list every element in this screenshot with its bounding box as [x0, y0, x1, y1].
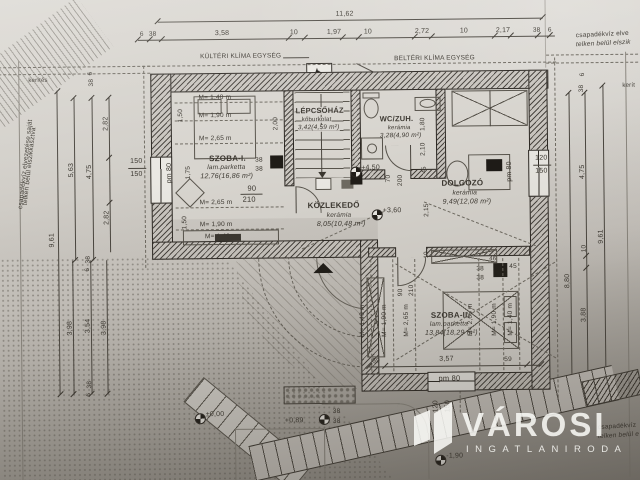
roof-overhang-right — [554, 58, 559, 398]
wall-right — [528, 70, 550, 390]
dim-top: 3,58 — [215, 30, 230, 37]
level-marker-icon — [195, 413, 206, 424]
dim-right: 4,75 — [579, 164, 586, 179]
height-label: M= 2,65 m — [200, 200, 233, 207]
paper-crease — [544, 0, 546, 68]
room-material-dolgozo: kerámia — [452, 190, 477, 197]
small-dim: 1,80 — [420, 117, 427, 131]
window-size-divider — [128, 168, 146, 169]
height-label: M= 1,40 m — [198, 95, 231, 102]
dim-line-right-2 — [584, 92, 588, 389]
watermark-subtitle: INGATLANIRODA — [466, 444, 627, 455]
level-value: ±0,00 — [206, 411, 225, 418]
window-size: 150 — [130, 158, 142, 165]
level-marker-icon — [319, 414, 330, 425]
cabinet-szoba2-top — [431, 249, 497, 264]
outdoor-ac-leader — [283, 57, 309, 58]
height-label: M= 1,40 m — [205, 234, 238, 241]
dim-top: 38 — [149, 32, 157, 39]
room-area-kozlekedo: 8,05(10,48 m²) — [317, 221, 366, 229]
room-name-dolgozo: DOLGOZÓ — [441, 179, 483, 187]
room-name-szoba1: SZOBA-I. — [209, 155, 246, 163]
room-material-szoba2: lam.parketta — [430, 321, 468, 328]
room-area-wc: 3,28(4,90 m²) — [380, 133, 422, 140]
door-size: 210 — [409, 285, 416, 297]
column-size: 38 — [476, 266, 484, 273]
small-dim: 2,10 — [420, 142, 427, 156]
dim-right: 10 — [582, 245, 589, 253]
dim-top: 6 — [548, 28, 552, 35]
column-size: 38 — [333, 409, 341, 416]
level-marker-icon — [350, 167, 361, 178]
dim-top-total: 11,62 — [336, 11, 354, 18]
roof-overhang-top — [142, 62, 556, 67]
parapet-label: pm 80 — [506, 161, 513, 182]
window-size: 120 — [535, 155, 547, 162]
toilet-tank — [362, 92, 379, 98]
window-size: 150 — [535, 168, 547, 175]
room-name-lepcsohaz: LÉPCSŐHÁZ — [296, 107, 344, 115]
room-area-lepcsohaz: 3,42(4,59 m²) — [298, 125, 340, 132]
dim-top: 10 — [460, 27, 468, 34]
dim-top: 10 — [290, 29, 298, 36]
column-size: 38 — [476, 275, 484, 282]
small-dim: 2,15 — [424, 203, 431, 217]
dim-top: 6 — [140, 32, 144, 39]
partition-szoba2-top-a — [368, 247, 396, 257]
ground-line-h — [322, 403, 400, 405]
watermark-brand: VÁROSI — [462, 406, 607, 444]
stair-landing-box — [315, 178, 331, 190]
column-size: 38 — [255, 158, 263, 165]
toilet — [364, 98, 379, 118]
entrance-marker-icon — [313, 263, 333, 273]
ground-floor-outline — [235, 428, 326, 480]
dim-left: 38 — [89, 79, 96, 87]
level-value: +3,60 — [383, 207, 402, 214]
room-material-wc: kerámia — [388, 125, 411, 131]
dim-left: 3,54 — [85, 319, 92, 334]
dim-right: 8,80 — [564, 274, 571, 289]
room-name-szoba2: SZOBA-II. — [431, 311, 470, 319]
parapet-label: pm 80 — [438, 375, 460, 383]
dim-bottom: 59 — [504, 357, 512, 364]
dim-left: 4,75 — [86, 165, 93, 180]
dim-left: 6 — [88, 72, 95, 76]
room-name-wc: WC/ZUH. — [380, 115, 414, 123]
small-dim: 1,50 — [178, 109, 185, 123]
logo-mark-icon — [414, 410, 430, 446]
column-size: 38 — [333, 419, 341, 426]
dim-left: 5,63 — [68, 163, 75, 178]
dim-left: 2,82 — [102, 116, 109, 131]
dim-left: 38 — [87, 381, 94, 389]
fence-label-right: kerít — [622, 83, 635, 89]
column-38 — [270, 155, 283, 168]
room-area-dolgozo: 9,49(12,08 m²) — [443, 198, 492, 206]
door-size: 200 — [398, 175, 405, 187]
dim-top: 38 — [533, 28, 541, 35]
dim-line-right-1 — [568, 92, 572, 389]
level-marker-icon — [372, 209, 383, 220]
room-material-lepcsohaz: kőburkolat — [302, 117, 332, 123]
staircase-treads — [294, 92, 350, 179]
dim-right: 3,88 — [580, 307, 587, 322]
height-label: M= 1,90 m — [200, 222, 233, 229]
watermark: VÁROSI INGATLANIRODA — [406, 398, 640, 468]
dim-top: 2,17 — [496, 27, 511, 34]
height-label: M= 2,65 m — [199, 136, 232, 143]
fence-label-left: kerítés — [28, 78, 47, 84]
desk-keyboard — [486, 159, 502, 171]
floorplan-sheet: kerítés kerít csapadékvíz elvezetése saj… — [0, 0, 640, 480]
small-dim: 45 — [422, 166, 428, 173]
dim-right: 6 — [580, 73, 587, 77]
room-area-szoba1: 12,76(16,86 m²) — [200, 173, 253, 181]
door-size: 210 — [243, 196, 256, 204]
room-material-kozlekedo: kerámia — [327, 213, 352, 220]
logo-mark-icon — [434, 402, 452, 454]
height-label: M= 1,90 m — [199, 113, 232, 120]
column-38 — [493, 263, 507, 277]
fence-line-left2 — [0, 73, 150, 76]
rubble-wall — [284, 386, 356, 405]
dim-left: 6 — [85, 268, 92, 272]
dim-bottom: 59 — [372, 358, 380, 365]
parapet-label: pm 80 — [166, 163, 173, 184]
partition-szoba1-stair — [283, 90, 294, 186]
height-label: M= 1,90 m — [492, 303, 499, 336]
dim-left: 3,98 — [67, 321, 74, 336]
height-label: M= 1,40 m — [508, 303, 515, 336]
dim-left: 2,82 — [103, 210, 110, 225]
window-size-divider — [533, 165, 551, 166]
dim-top: 10 — [364, 28, 372, 35]
dim-right: 9,61 — [598, 229, 605, 244]
dim-top: 2,72 — [415, 28, 430, 35]
dim-left: 3,98 — [101, 321, 108, 336]
dim-bottom: 3,57 — [439, 356, 454, 363]
partition-stair-wc — [350, 90, 361, 178]
door-size: 70 — [386, 175, 393, 183]
dim-left: 9,61 — [49, 233, 56, 248]
room-material-szoba1: lam.parketta — [207, 165, 245, 172]
drain-note-right-2: telken belül elszik — [576, 40, 631, 49]
door-size: 90 — [247, 185, 256, 193]
dim-line-left-1 — [73, 98, 76, 261]
height-label: M= 2,65 m — [404, 304, 411, 337]
column-size: 38 — [255, 167, 263, 174]
door-size: 90 — [398, 289, 405, 297]
small-dim: 1,50 — [182, 216, 189, 230]
window-size: 150 — [130, 171, 142, 178]
height-label: M= 1,40 m — [360, 304, 367, 337]
column-size: 45 — [509, 264, 517, 271]
outdoor-ac-label: KÜLTÉRI KLÍMA EGYSÉG — [200, 53, 281, 60]
small-dim: 1,75 — [186, 166, 193, 180]
room-name-kozlekedo: KÖZLEKEDŐ — [308, 202, 360, 211]
height-label: M= 1,90 m — [382, 304, 389, 337]
level-value: +4,50 — [361, 164, 380, 171]
small-dim: 46 — [489, 256, 496, 262]
dim-top: 1,97 — [327, 29, 342, 36]
small-dim: 2,00 — [273, 117, 280, 131]
shower-drain — [367, 143, 377, 153]
small-dim: 10 — [424, 251, 430, 258]
dim-line-top-total — [158, 18, 543, 23]
height-label: M= 2,65 m — [468, 303, 475, 336]
level-value: +0,89 — [285, 417, 304, 424]
